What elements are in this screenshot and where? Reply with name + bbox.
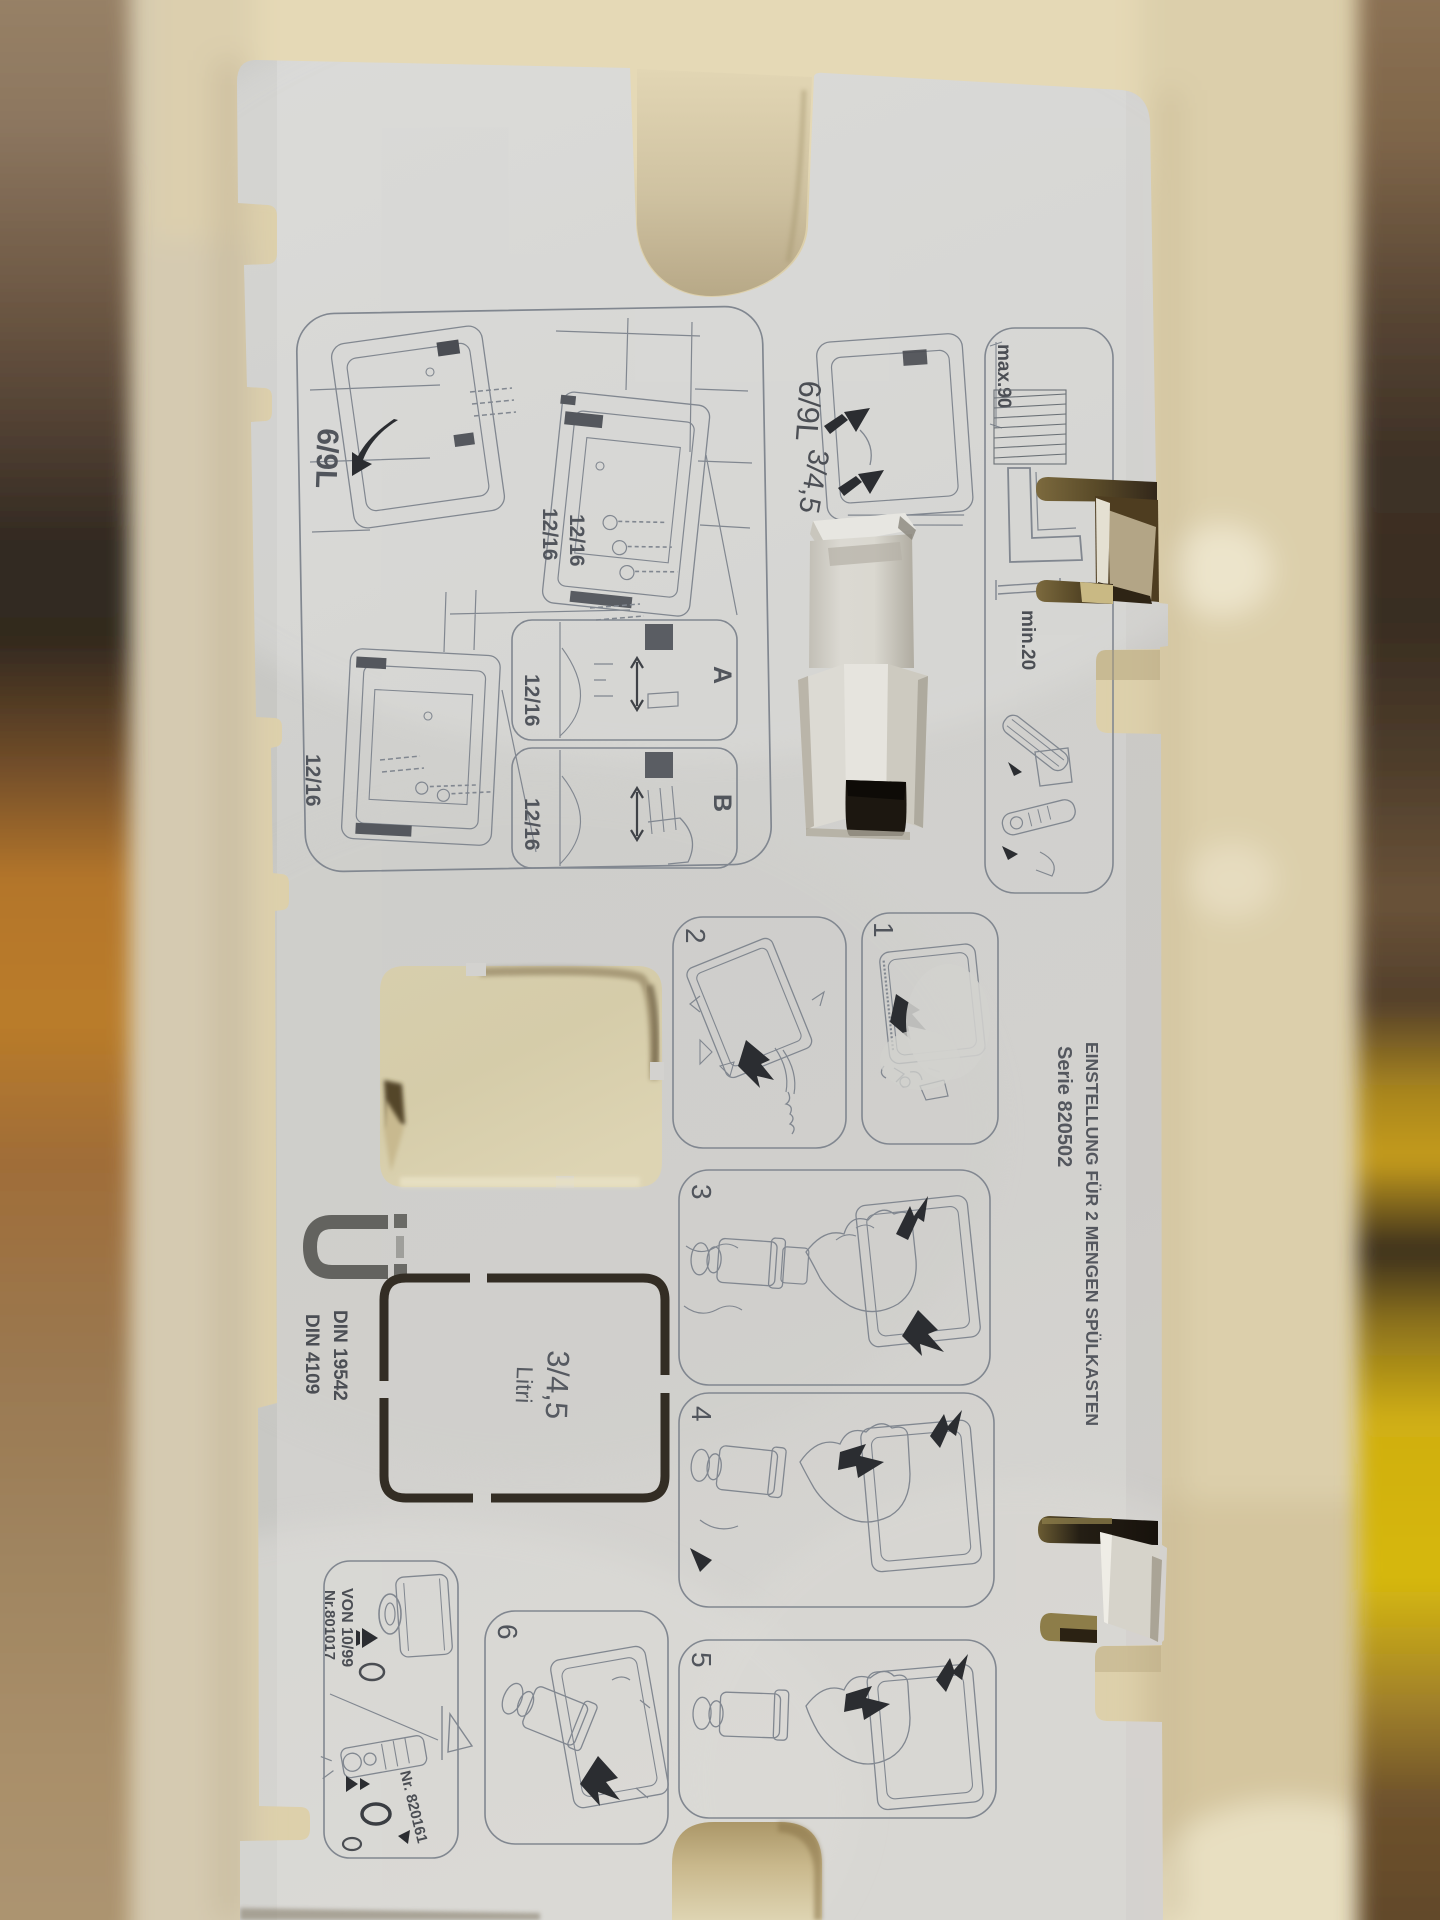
svg-text:DIN 19542: DIN 19542 (329, 1310, 350, 1401)
svg-text:12/16: 12/16 (301, 754, 324, 807)
svg-text:3: 3 (686, 1184, 717, 1200)
svg-text:5: 5 (686, 1652, 717, 1668)
svg-text:6/9L: 6/9L (789, 380, 828, 443)
svg-text:6/9L: 6/9L (309, 428, 344, 489)
svg-text:VON 10/99: VON 10/99 (338, 1588, 355, 1667)
svg-text:4: 4 (686, 1406, 717, 1422)
svg-text:B: B (708, 794, 736, 812)
svg-text:12/16: 12/16 (520, 674, 543, 727)
svg-text:1: 1 (868, 922, 899, 938)
svg-text:Nr.801017: Nr.801017 (321, 1590, 338, 1660)
svg-text:12/16: 12/16 (520, 798, 543, 851)
svg-text:6: 6 (492, 1624, 523, 1640)
svg-text:DIN 4109: DIN 4109 (301, 1314, 322, 1394)
svg-text:3/4,5: 3/4,5 (539, 1350, 576, 1420)
svg-text:12/16: 12/16 (565, 514, 588, 567)
svg-text:12/16: 12/16 (538, 508, 561, 561)
svg-text:Serie 820502: Serie 820502 (1053, 1046, 1075, 1167)
svg-text:EINSTELLUNG FÜR 2 MENGEN SPÜLK: EINSTELLUNG FÜR 2 MENGEN SPÜLKASTEN (1082, 1042, 1102, 1426)
svg-text:A: A (708, 666, 736, 684)
svg-text:2: 2 (680, 928, 711, 944)
svg-text:min.20: min.20 (1017, 610, 1038, 670)
svg-text:Litri: Litri (511, 1366, 538, 1404)
